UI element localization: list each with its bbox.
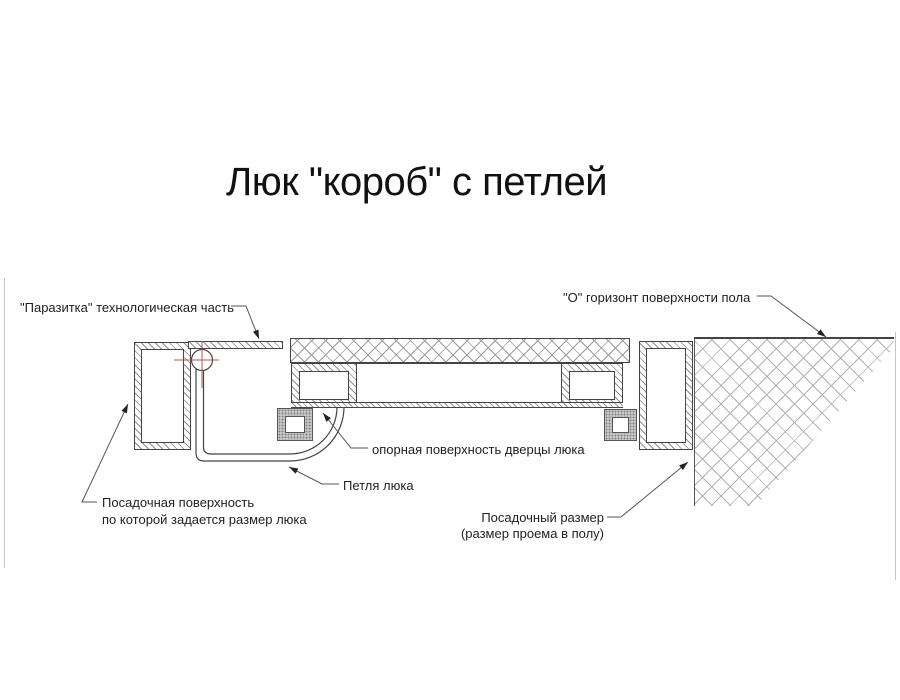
seal-square-left-cavity	[285, 416, 305, 433]
hatch-frame-left	[134, 342, 191, 450]
parasitic-plate	[188, 341, 283, 349]
label-seating-size: Посадочный размер (размер проема в полу)	[420, 510, 604, 542]
label-seating-size-line1: Посадочный размер	[420, 510, 604, 526]
leader-bearing-surface	[323, 413, 368, 448]
hatch-frame-right-cavity	[646, 348, 686, 443]
label-seating-surface-line1: Посадочная поверхность	[102, 494, 307, 511]
page-edge-right	[895, 332, 896, 580]
label-bearing-surface: опорная поверхность дверцы люка	[372, 441, 585, 458]
door-bottom-plate	[291, 402, 623, 408]
leader-hinge	[289, 467, 339, 484]
label-hinge: Петля люка	[343, 477, 414, 494]
arrow-bearing-surface	[321, 411, 331, 422]
door-lid-filling	[290, 338, 630, 363]
label-floor-level: "О" горизонт поверхности пола	[563, 289, 750, 306]
arrow-seating-size	[679, 460, 690, 470]
door-profile-right-cavity	[569, 371, 615, 400]
leader-floor-level	[757, 296, 826, 337]
seal-square-right	[604, 409, 637, 441]
leader-seating-surface	[82, 404, 128, 502]
hatch-frame-left-cavity	[141, 349, 184, 443]
drawing-canvas: Люк "короб" с петлей "Паразитка" техноло…	[0, 0, 900, 700]
hatch-frame-right	[639, 341, 693, 450]
door-mid-top-line	[356, 363, 562, 364]
arrow-hinge	[288, 464, 299, 473]
leader-parasitic	[231, 306, 259, 339]
label-seating-surface-line2: по которой задается размер люка	[102, 511, 307, 528]
arrow-seating-surface	[121, 403, 130, 414]
label-parasitic: "Паразитка" технологическая часть	[20, 299, 234, 316]
label-seating-size-line2: (размер проема в полу)	[420, 526, 604, 542]
page-edge-left	[4, 278, 5, 568]
door-profile-left-cavity	[299, 371, 349, 400]
arrow-parasitic	[253, 330, 262, 341]
leader-seating-size	[607, 462, 688, 517]
floor-surface-line	[694, 337, 894, 339]
hinge-pivot-circle	[192, 350, 213, 371]
seal-square-right-cavity	[612, 417, 629, 433]
floor-slab-hatch	[694, 339, 894, 506]
drawing-title: Люк "короб" с петлей	[226, 160, 606, 204]
seal-square-left	[277, 408, 313, 441]
label-seating-surface: Посадочная поверхность по которой задает…	[102, 494, 307, 528]
